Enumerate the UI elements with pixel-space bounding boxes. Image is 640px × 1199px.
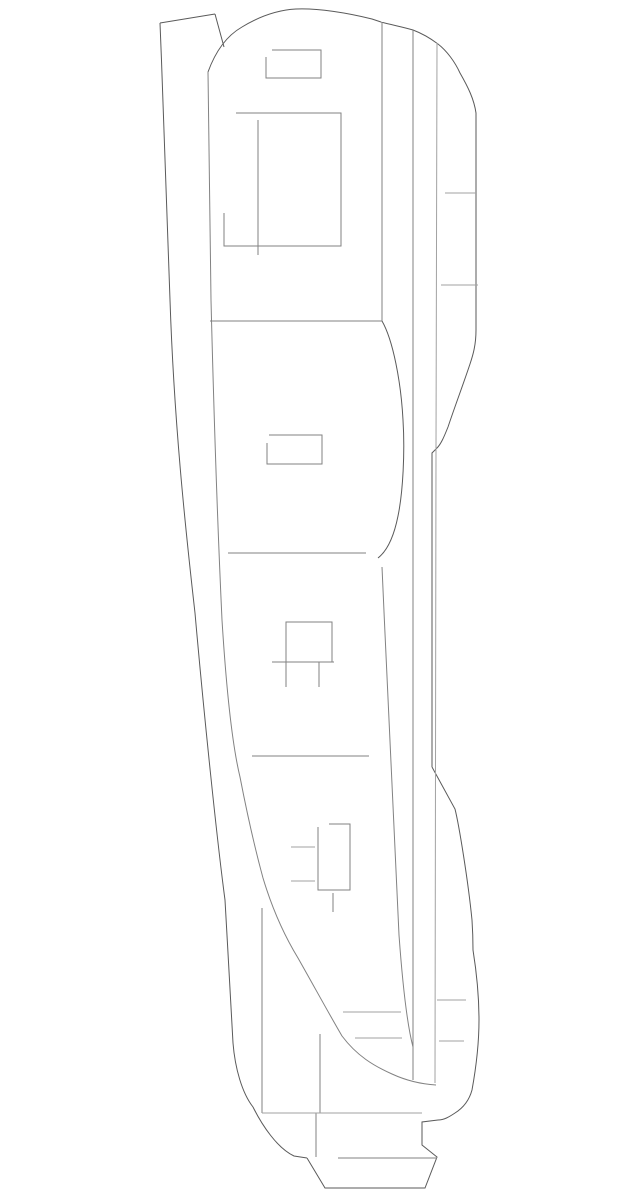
top-dome-outline (208, 9, 476, 330)
big-rect (224, 113, 341, 246)
mid-square (286, 622, 332, 687)
left-inner-edge-sweep (208, 72, 436, 1085)
bottom-rect (318, 824, 350, 890)
right-notch-curve (432, 330, 476, 767)
strip-top-edge (160, 14, 215, 23)
left-outer-edge (160, 23, 307, 1158)
vertical-line-v3 (435, 43, 437, 1083)
strip-right-edge (215, 14, 224, 47)
diagram-page (0, 0, 640, 1199)
right-lower-outline (307, 767, 479, 1188)
bulge-curve (378, 321, 404, 558)
diagram-svg (0, 0, 640, 1199)
slant-line (382, 567, 413, 1047)
mid-small-rect (267, 435, 322, 464)
top-small-rect (266, 50, 321, 78)
